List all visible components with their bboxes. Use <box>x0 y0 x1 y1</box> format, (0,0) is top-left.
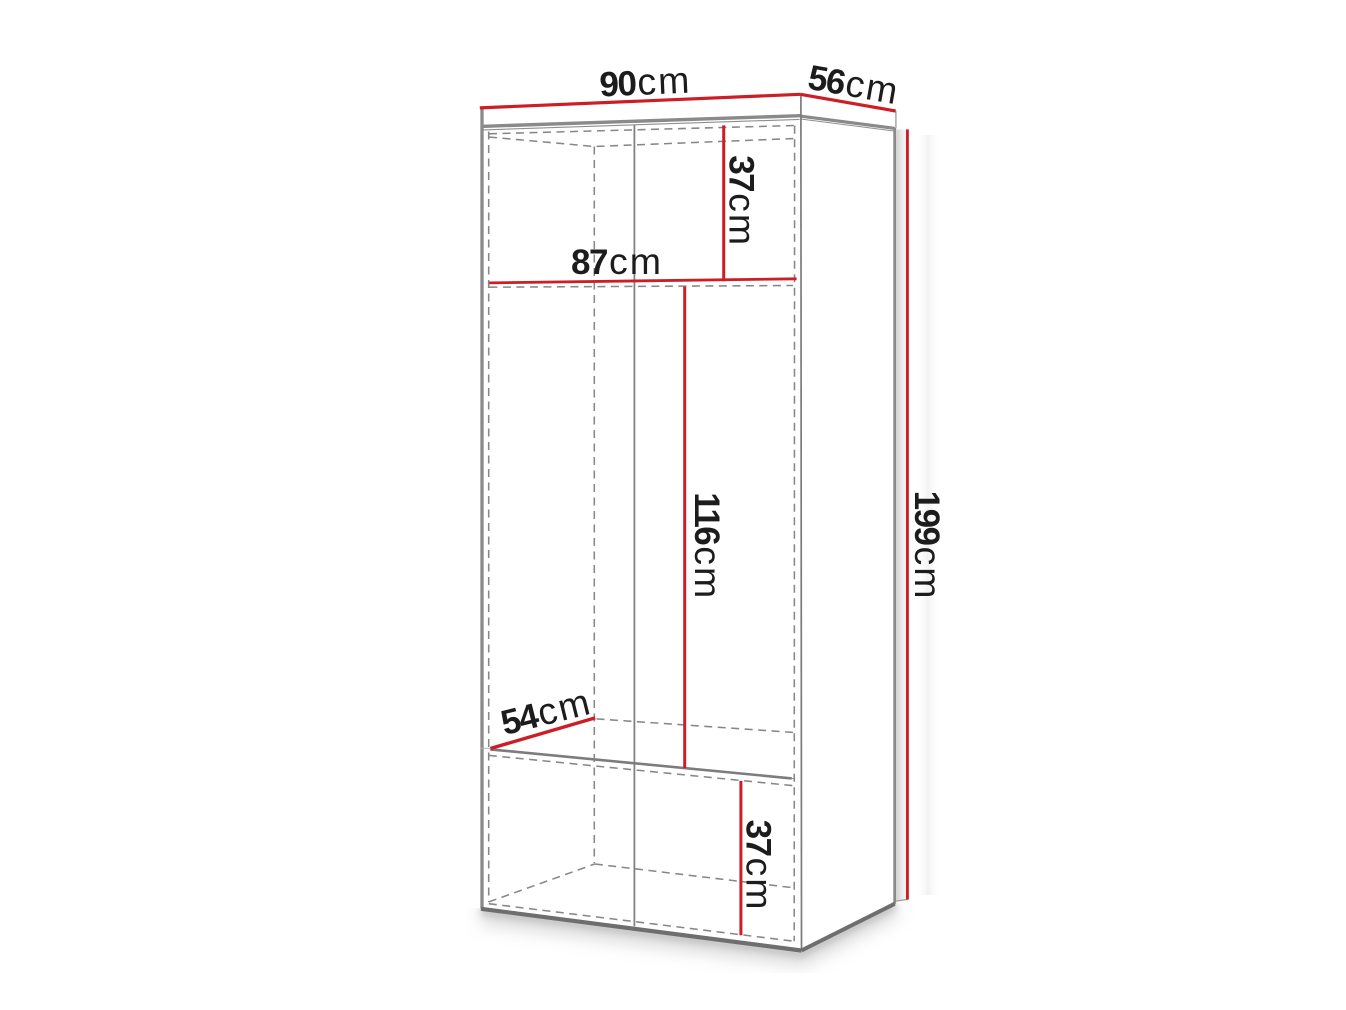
svg-text:37cm: 37cm <box>739 820 781 912</box>
svg-text:90cm: 90cm <box>599 59 693 105</box>
svg-text:199cm: 199cm <box>907 491 949 601</box>
svg-text:87cm: 87cm <box>571 240 663 282</box>
svg-text:116cm: 116cm <box>687 492 729 600</box>
svg-text:37cm: 37cm <box>721 155 763 247</box>
